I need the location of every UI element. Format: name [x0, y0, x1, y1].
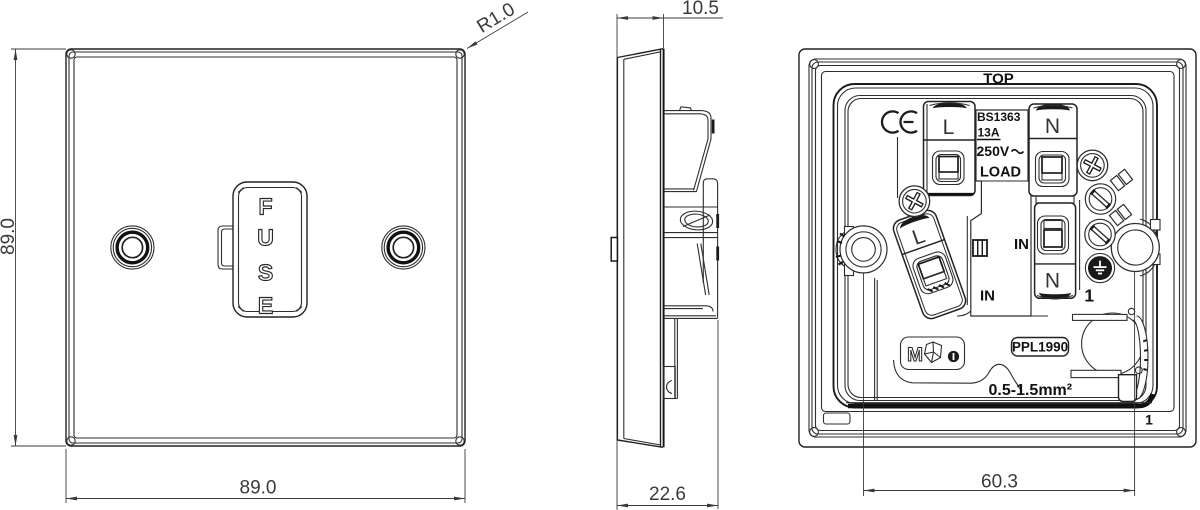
svg-text:M: M [907, 345, 923, 366]
svg-text:N: N [1045, 270, 1060, 293]
svg-text:10.5: 10.5 [682, 0, 719, 19]
svg-text:PPL1990: PPL1990 [1012, 340, 1068, 355]
svg-text:E: E [258, 293, 273, 319]
svg-text:F: F [258, 194, 272, 220]
svg-text:IN: IN [980, 288, 995, 305]
svg-text:IN: IN [1014, 236, 1029, 253]
svg-text:250V: 250V [977, 143, 1010, 159]
svg-text:13A: 13A [978, 126, 1000, 140]
svg-text:U: U [257, 225, 274, 251]
svg-text:1: 1 [1084, 286, 1094, 306]
svg-text:0.5-1.5mm²: 0.5-1.5mm² [989, 382, 1073, 399]
svg-text:L: L [943, 116, 955, 139]
svg-text:89.0: 89.0 [240, 478, 277, 499]
svg-text:1: 1 [1145, 412, 1153, 428]
svg-text:LOAD: LOAD [980, 165, 1021, 181]
svg-text:60.3: 60.3 [981, 472, 1018, 493]
svg-text:N: N [1045, 115, 1060, 138]
svg-text:S: S [258, 260, 273, 286]
svg-text:22.6: 22.6 [649, 484, 686, 505]
svg-text:89.0: 89.0 [0, 218, 19, 255]
svg-text:BS1363: BS1363 [977, 110, 1021, 124]
